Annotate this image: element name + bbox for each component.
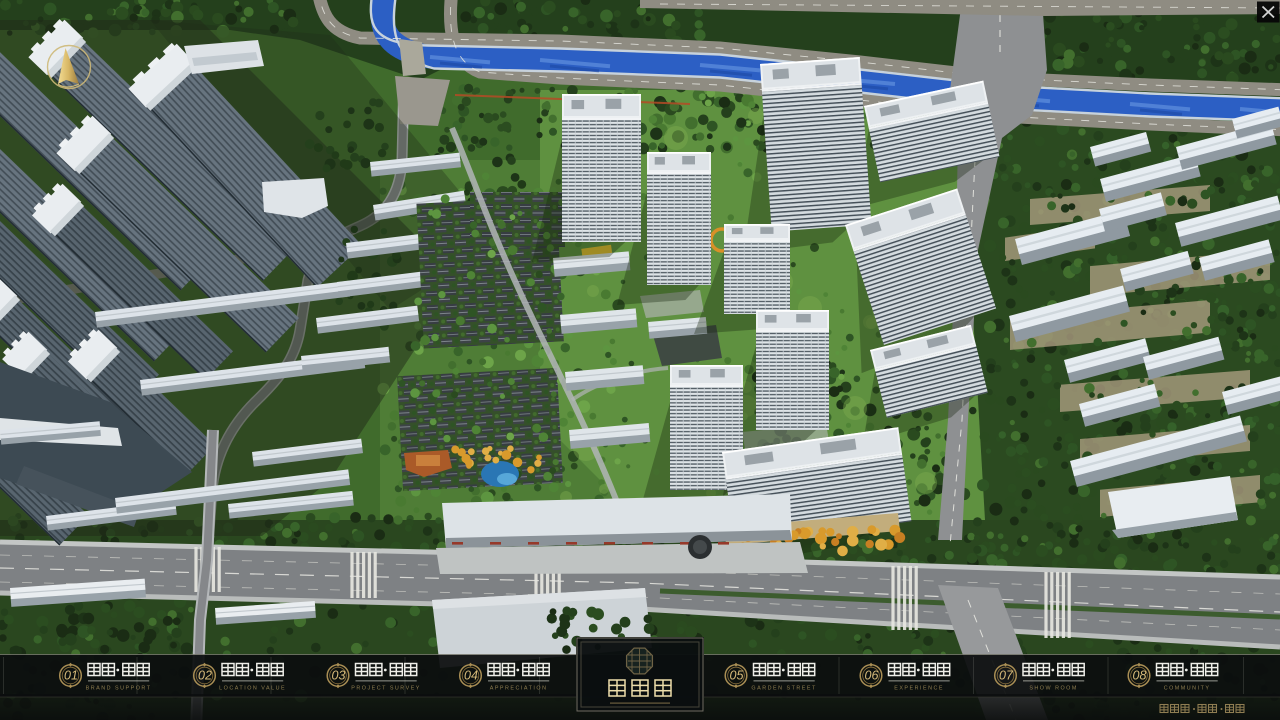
svg-text:06: 06 <box>865 669 879 683</box>
svg-text:EXPERIENCE: EXPERIENCE <box>894 686 944 692</box>
svg-text:PROJECT SURVEY: PROJECT SURVEY <box>351 686 421 692</box>
svg-text:02: 02 <box>198 669 212 683</box>
svg-text:LOCATION VALUE: LOCATION VALUE <box>219 686 286 692</box>
svg-text:04: 04 <box>464 669 478 683</box>
svg-text:07: 07 <box>999 669 1014 683</box>
svg-text:BRAND SUPPORT: BRAND SUPPORT <box>86 686 152 692</box>
svg-text:05: 05 <box>730 669 744 683</box>
svg-text:SHOW ROOM: SHOW ROOM <box>1029 686 1078 692</box>
svg-text:COMMUNITY: COMMUNITY <box>1164 686 1211 692</box>
svg-text:01: 01 <box>64 669 78 683</box>
svg-text:GARDEN STREET: GARDEN STREET <box>751 686 816 692</box>
svg-text:APPRECIATION: APPRECIATION <box>490 686 548 692</box>
svg-text:08: 08 <box>1133 669 1147 683</box>
svg-text:03: 03 <box>332 669 346 683</box>
